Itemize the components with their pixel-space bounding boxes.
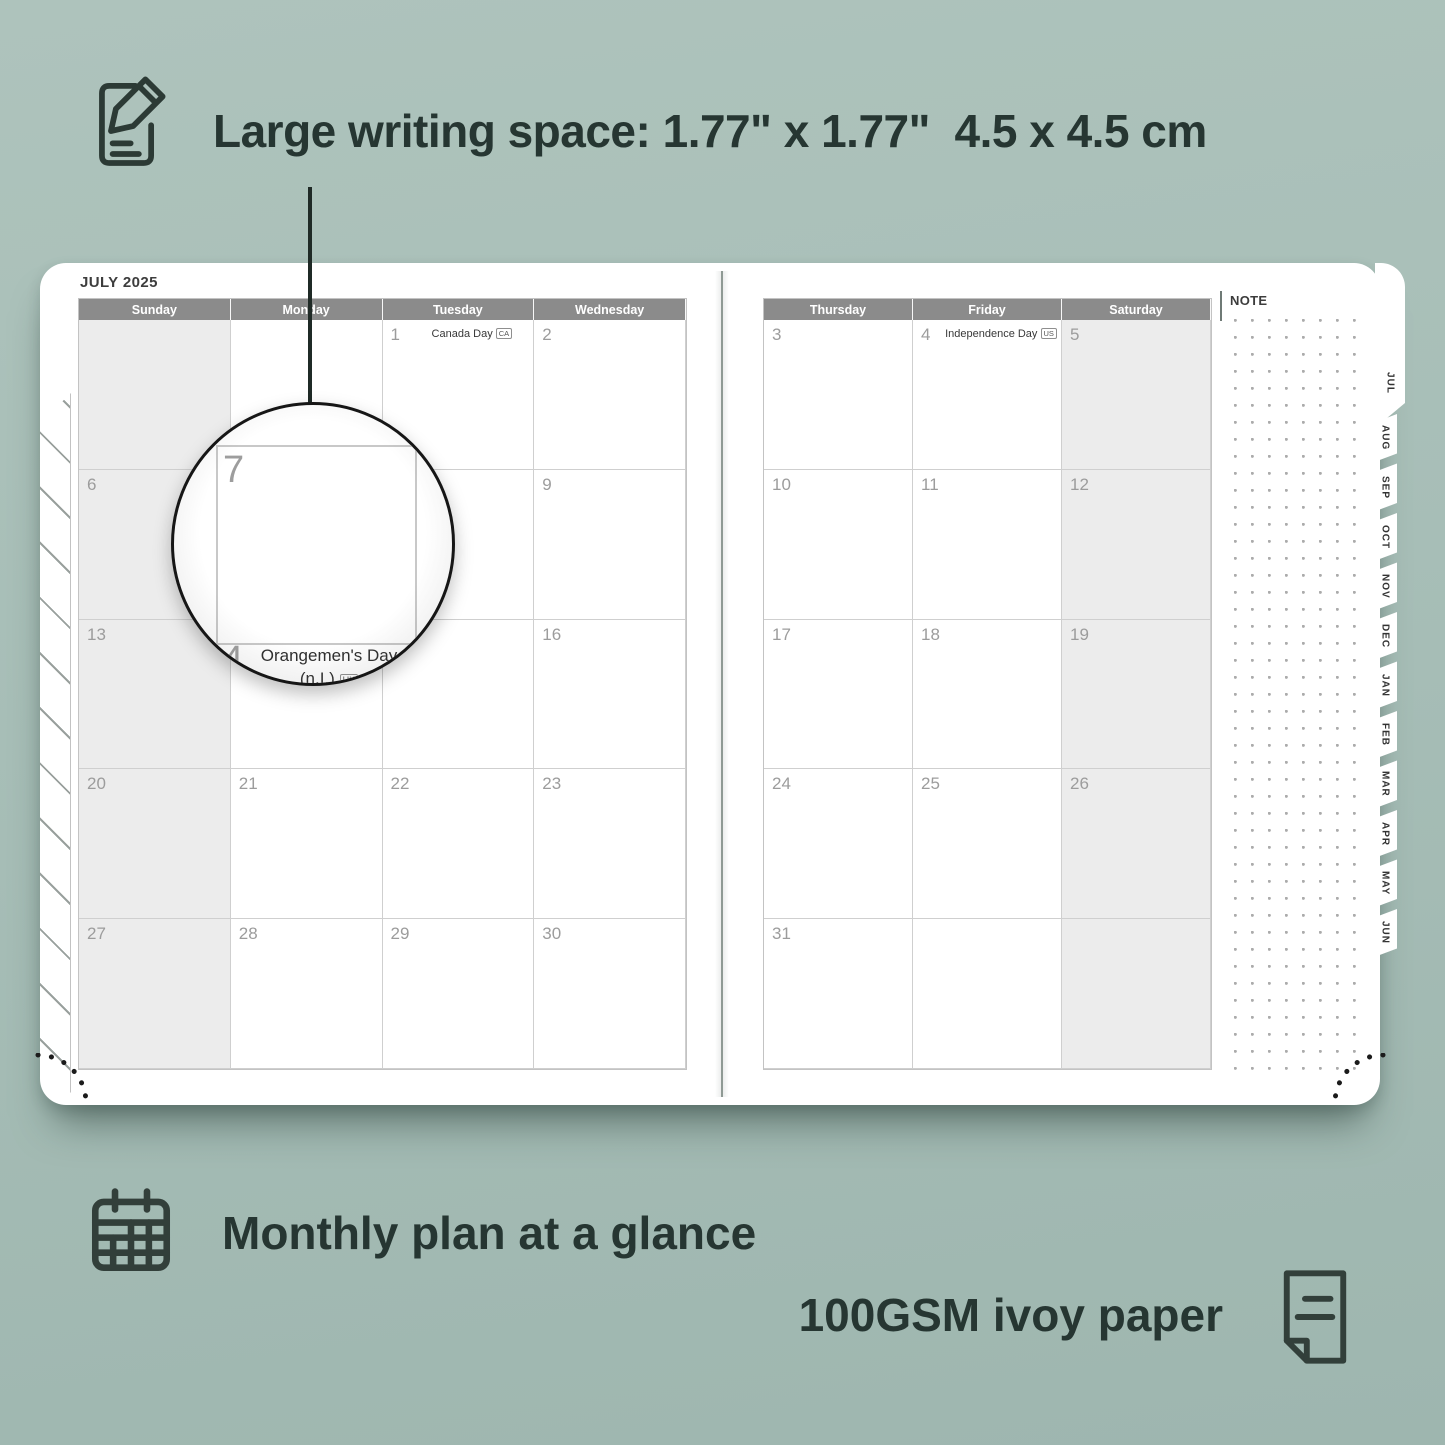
month-tab-label: FEB: [1380, 723, 1391, 746]
month-title: JULY 2025: [80, 274, 158, 291]
holiday-line2: (n.I.): [300, 669, 335, 686]
month-tab-feb[interactable]: FEB: [1373, 710, 1397, 760]
calendar-cell: [1062, 919, 1211, 1069]
monthly-plan-caption: Monthly plan at a glance: [222, 1206, 756, 1260]
month-tab-label: OCT: [1380, 525, 1391, 549]
callout-connector-line: [308, 187, 312, 407]
page-edge-hatching: [40, 393, 71, 1093]
writing-space-outline: [216, 445, 417, 645]
calendar-cell: 31: [764, 919, 913, 1069]
day-number: 3: [772, 325, 781, 345]
day-number: 26: [1070, 774, 1089, 794]
holiday-label: Independence Day US: [945, 327, 1057, 341]
planner-spread: JULY 2025 SundayMondayTuesdayWednesday1C…: [40, 263, 1380, 1105]
day-header: Monday: [231, 299, 383, 320]
dot-grid: [1228, 315, 1370, 1071]
day-header: Sunday: [79, 299, 231, 320]
calendar-cell: 25: [913, 769, 1062, 919]
calendar-cell: 12: [1062, 470, 1211, 620]
month-tab-label: NOV: [1380, 574, 1391, 599]
note-label: NOTE: [1230, 293, 1267, 308]
binding-gutter: [721, 271, 723, 1097]
day-number: 13: [87, 625, 106, 645]
calendar-cell: 3: [764, 320, 913, 470]
day-number: 18: [921, 625, 940, 645]
day-number: 20: [87, 774, 106, 794]
holiday-line1: Orangemen's Day: [261, 646, 397, 665]
day-number: 27: [87, 924, 106, 944]
calendar-cell: 16: [534, 620, 686, 770]
calendar-cell: 19: [1062, 620, 1211, 770]
day-number: 1: [391, 325, 400, 345]
calendar-cell: 24: [764, 769, 913, 919]
day-header: Wednesday: [534, 299, 686, 320]
stitch-arc-bottom-left: [33, 1053, 91, 1109]
month-tab-label: SEP: [1380, 476, 1391, 499]
month-tab-jan[interactable]: JAN: [1373, 661, 1397, 711]
day-number: 30: [542, 924, 561, 944]
day-number: 19: [1070, 625, 1089, 645]
magnified-day-number: 7: [223, 449, 244, 492]
day-number: 11: [921, 475, 939, 495]
calendar-grid-left: SundayMondayTuesdayWednesday1Canada Day …: [78, 298, 687, 1070]
month-tab-oct[interactable]: OCT: [1373, 512, 1397, 562]
day-number: 21: [239, 774, 258, 794]
day-number: 6: [87, 475, 96, 495]
calendar-cell: 23: [534, 769, 686, 919]
magnifier-circle: 7 14 Orangemen's Day (n.I.) UK: [171, 402, 455, 686]
day-number: 24: [772, 774, 791, 794]
day-number: 25: [921, 774, 940, 794]
calendar-cell: 10: [764, 470, 913, 620]
calendar-cell: 28: [231, 919, 383, 1069]
month-tab-label: JUL: [1385, 372, 1396, 394]
month-tab-label: MAY: [1380, 871, 1391, 895]
day-number: 4: [921, 325, 930, 345]
month-tab-may[interactable]: MAY: [1373, 859, 1397, 909]
day-number: 31: [772, 924, 791, 944]
calendar-cell: 4Independence Day US: [913, 320, 1062, 470]
month-tab-label: APR: [1380, 822, 1391, 846]
calendar-cell: 26: [1062, 769, 1211, 919]
note-divider: [1220, 291, 1222, 321]
calendar-icon: [84, 1184, 178, 1280]
country-badge: US: [1041, 328, 1057, 339]
calendar-cell: 30: [534, 919, 686, 1069]
magnified-holiday-label: Orangemen's Day (n.I.) UK: [230, 645, 428, 686]
day-number: 29: [391, 924, 410, 944]
month-tab-jul[interactable]: JUL: [1375, 263, 1405, 428]
month-tab-label: DEC: [1380, 624, 1391, 648]
product-scene: Large writing space: 1.77" x 1.77" 4.5 x…: [0, 0, 1445, 1445]
day-number: 17: [772, 625, 791, 645]
holiday-label: Canada Day CA: [415, 327, 530, 341]
calendar-cell: 5: [1062, 320, 1211, 470]
writing-space-caption: Large writing space: 1.77" x 1.77" 4.5 x…: [213, 104, 1207, 158]
day-number: 23: [542, 774, 561, 794]
day-header: Tuesday: [383, 299, 535, 320]
day-number: 5: [1070, 325, 1079, 345]
month-tab-sep[interactable]: SEP: [1373, 463, 1397, 513]
day-header: Saturday: [1062, 299, 1211, 320]
month-tab-mar[interactable]: MAR: [1373, 760, 1397, 810]
paper-caption: 100GSM ivoy paper: [799, 1288, 1223, 1342]
day-header: Thursday: [764, 299, 913, 320]
month-tab-label: JUN: [1380, 921, 1391, 944]
paper-sheet-icon: [1274, 1266, 1356, 1368]
month-tab-apr[interactable]: APR: [1373, 809, 1397, 859]
country-badge: CA: [496, 328, 512, 339]
day-number: 2: [542, 325, 551, 345]
calendar-cell: 27: [79, 919, 231, 1069]
day-header: Friday: [913, 299, 1062, 320]
calendar-cell: 18: [913, 620, 1062, 770]
calendar-cell: 17: [764, 620, 913, 770]
day-number: 9: [542, 475, 551, 495]
calendar-cell: 9: [534, 470, 686, 620]
calendar-cell: 11: [913, 470, 1062, 620]
day-number: 28: [239, 924, 258, 944]
calendar-cell: 29: [383, 919, 535, 1069]
note-pencil-icon: [88, 70, 170, 174]
note-section: NOTE: [1228, 293, 1374, 1071]
day-number: 12: [1070, 475, 1089, 495]
calendar-cell: [913, 919, 1062, 1069]
month-tab-label: MAR: [1380, 771, 1391, 797]
month-tab-nov[interactable]: NOV: [1373, 562, 1397, 612]
month-tab-aug[interactable]: AUG: [1373, 413, 1397, 463]
calendar-cell: 2: [534, 320, 686, 470]
calendar-cell: 20: [79, 769, 231, 919]
calendar-grid-right: ThursdayFridaySaturday34Independence Day…: [763, 298, 1212, 1070]
stitch-arc-bottom-right: [1330, 1053, 1388, 1109]
calendar-cell: 21: [231, 769, 383, 919]
day-number: 10: [772, 475, 791, 495]
calendar-cell: 22: [383, 769, 535, 919]
day-number: 16: [542, 625, 561, 645]
month-tab-jun[interactable]: JUN: [1373, 908, 1397, 958]
day-number: 22: [391, 774, 410, 794]
month-tab-dec[interactable]: DEC: [1373, 611, 1397, 661]
month-tab-strip: AUGSEPOCTNOVDECJANFEBMARAPRMAYJUN: [1373, 413, 1397, 958]
month-tab-label: JAN: [1380, 674, 1391, 697]
month-tab-label: AUG: [1380, 425, 1391, 450]
